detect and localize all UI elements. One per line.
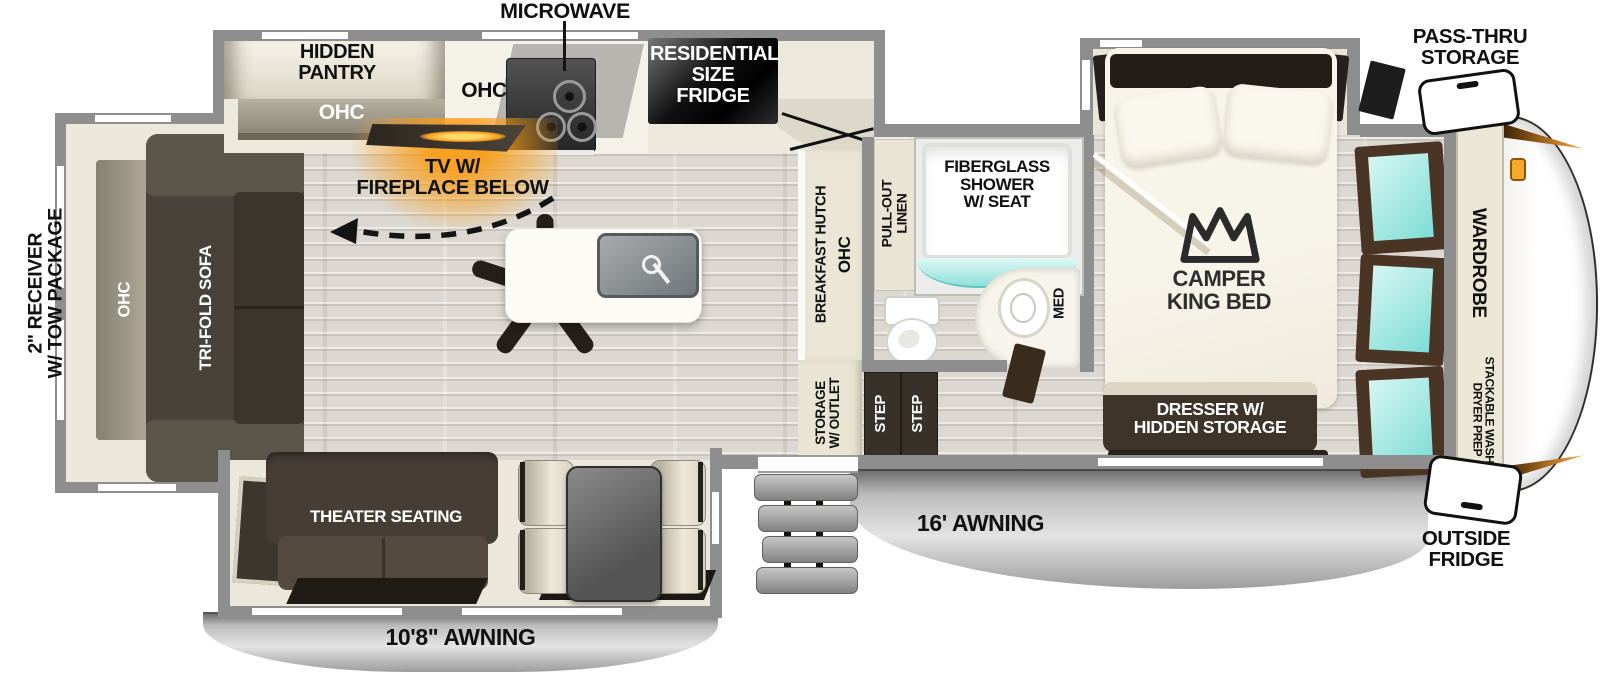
receiver-tow-label: 2" RECEIVER W/ TOW PACKAGE xyxy=(26,173,67,413)
bed-slide-window xyxy=(1082,60,1090,110)
bedroom-front-wall xyxy=(1444,137,1456,487)
dinette-rail xyxy=(520,462,525,522)
burner-icon xyxy=(567,112,597,142)
fireplace-flame xyxy=(420,131,506,142)
kitchen-window xyxy=(262,32,348,39)
bath-wall-top xyxy=(885,124,1080,137)
microwave-pointer-line xyxy=(563,21,566,71)
hutch-ohc-label: OHC xyxy=(836,225,854,285)
theater-seating xyxy=(266,452,498,544)
theater-seating-label: THEATER SEATING xyxy=(286,508,486,526)
breakfast-hutch xyxy=(798,150,869,360)
bottom-slide-window xyxy=(462,608,622,615)
microwave-label: MICROWAVE xyxy=(470,0,660,22)
storage-outlet-label: STORAGE W/ OUTLET xyxy=(814,358,842,468)
kitchen-slide-wall-right xyxy=(874,30,885,137)
bed-slide-window xyxy=(1100,40,1142,47)
breakfast-hutch-label: BREAKFAST HUTCH xyxy=(814,145,829,365)
entry-steps xyxy=(752,474,864,598)
pillow xyxy=(1223,83,1334,165)
dinette-table xyxy=(566,466,662,602)
camper-king-bed-label: CAMPER KING BED xyxy=(1124,268,1314,314)
wardrobe-label: WARDROBE xyxy=(1468,198,1488,328)
tri-fold-sofa-label: TRI-FOLD SOFA xyxy=(197,213,215,403)
entry-step xyxy=(762,536,858,563)
burner-icon xyxy=(553,80,586,113)
bed-slide-wall-right xyxy=(1347,38,1360,135)
bottom-slide-wall-left xyxy=(218,450,230,618)
pull-out-linen-label: PULL-OUT LINEN xyxy=(879,139,908,289)
dresser-top xyxy=(1103,382,1317,395)
dinette-rail xyxy=(698,462,703,522)
tri-fold-sofa xyxy=(146,134,304,482)
window-glass xyxy=(1369,378,1433,465)
door-latch-icon xyxy=(1456,81,1479,90)
entry-step xyxy=(754,474,858,501)
theater-mat xyxy=(286,578,488,604)
hutch-wall xyxy=(862,137,874,372)
entry-step xyxy=(756,567,858,594)
main-awning-label: 16' AWNING xyxy=(898,512,1063,536)
headboard xyxy=(1110,54,1332,88)
outside-fridge-door-icon xyxy=(1422,454,1523,526)
entry-threshold xyxy=(758,455,858,473)
crown-icon xyxy=(1176,204,1264,266)
bottom-slide-window xyxy=(712,492,719,544)
rv-floorplan: OHC TRI-FOLD SOFA HIDDEN PANTRY OHC OHC … xyxy=(0,0,1600,695)
rear-awning-label: 10'8" AWNING xyxy=(373,626,548,650)
step-upper-label: STEP xyxy=(873,379,889,449)
bedroom-bottom-window xyxy=(1098,458,1323,466)
dinette-rail xyxy=(520,530,525,590)
bottom-slide-window xyxy=(252,608,402,615)
bedroom-tv xyxy=(1358,60,1406,119)
step-lower-label: STEP xyxy=(910,379,926,449)
outside-fridge-label: OUTSIDE FRIDGE xyxy=(1396,528,1536,571)
kitchen-slide-wall-left xyxy=(213,30,224,124)
window-glass xyxy=(1368,153,1434,241)
bedroom-window xyxy=(1354,141,1449,255)
vanity-sink-inner xyxy=(1010,293,1036,323)
sofa-ohc-label: OHC xyxy=(116,270,133,330)
window-glass xyxy=(1369,265,1433,352)
kitchen-window xyxy=(482,32,638,39)
hidden-pantry-label: HIDDEN PANTRY xyxy=(266,42,408,84)
bath-wall-bottom xyxy=(862,360,1007,372)
rear-window xyxy=(95,115,171,122)
shower-label: FIBERGLASS SHOWER W/ SEAT xyxy=(915,158,1079,211)
pass-thru-storage-label: PASS-THRU STORAGE xyxy=(1402,26,1538,69)
door-latch-icon xyxy=(1460,501,1483,510)
entry-step xyxy=(758,505,858,532)
rear-window xyxy=(98,484,176,491)
cap-handle-icon xyxy=(1510,158,1526,181)
residential-fridge-label: RESIDENTIAL SIZE FRIDGE xyxy=(650,44,776,106)
dinette-rail xyxy=(698,530,703,590)
sofa-seam xyxy=(234,306,304,309)
dresser-label: DRESSER W/ HIDDEN STORAGE xyxy=(1110,400,1310,436)
bottom-wall xyxy=(722,455,758,469)
med-cabinet-label: MED xyxy=(1052,274,1067,334)
bedroom-window xyxy=(1355,254,1449,366)
